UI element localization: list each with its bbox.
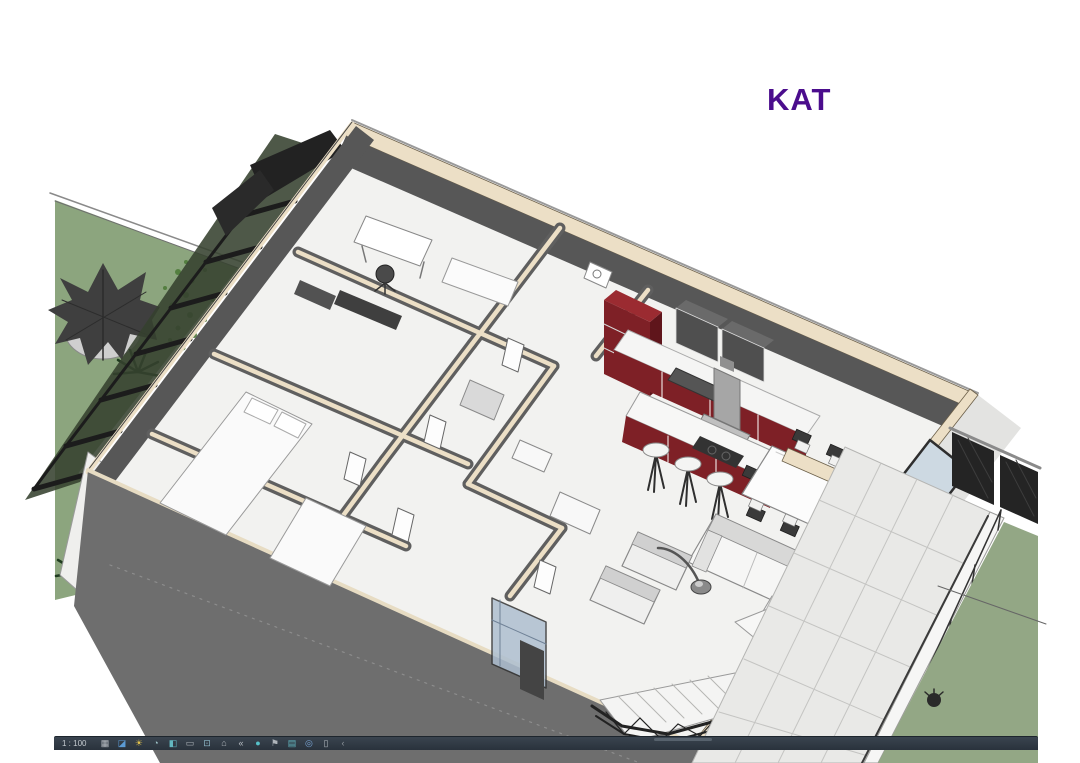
detail-level-icon[interactable]: ▦ <box>96 737 113 750</box>
analytical-model-icon[interactable]: ▤ <box>283 737 300 750</box>
shadows-icon[interactable]: ◔ <box>147 737 164 750</box>
crop-view-icon[interactable]: ▭ <box>181 737 198 750</box>
scrollbar-thumb[interactable] <box>654 738 712 741</box>
show-crop-region-icon[interactable]: ⊡ <box>198 737 215 750</box>
view-control-icons: ▦ ◪ ☀ ◔ ◧ ▭ ⊡ ⌂ « ● ⚑ ▤ ◎ ▯ ‹ <box>96 737 351 750</box>
expand-chevron-icon[interactable]: ‹ <box>334 737 351 750</box>
sun-path-icon[interactable]: ☀ <box>130 737 147 750</box>
reveal-constraints-icon[interactable]: ▯ <box>317 737 334 750</box>
rendering-dialog-icon[interactable]: ◧ <box>164 737 181 750</box>
document-page: KAT 1 : 100 ▦ ◪ ☀ ◔ ◧ ▭ ⊡ ⌂ « ● ⚑ ▤ ◎ ▯ … <box>0 0 1080 763</box>
unlocked-3d-view-icon[interactable]: ⌂ <box>215 737 232 750</box>
view-control-bar: 1 : 100 ▦ ◪ ☀ ◔ ◧ ▭ ⊡ ⌂ « ● ⚑ ▤ ◎ ▯ ‹ <box>54 736 1038 750</box>
temporary-hide-isolate-icon[interactable]: « <box>232 737 249 750</box>
displacement-sets-icon[interactable]: ◎ <box>300 737 317 750</box>
reveal-hidden-elements-icon[interactable]: ● <box>249 737 266 750</box>
model-3d-view[interactable] <box>0 0 1080 763</box>
scale-control[interactable]: 1 : 100 <box>54 739 96 748</box>
visual-style-icon[interactable]: ◪ <box>113 737 130 750</box>
view-title: KAT <box>767 82 831 118</box>
temporary-view-properties-icon[interactable]: ⚑ <box>266 737 283 750</box>
